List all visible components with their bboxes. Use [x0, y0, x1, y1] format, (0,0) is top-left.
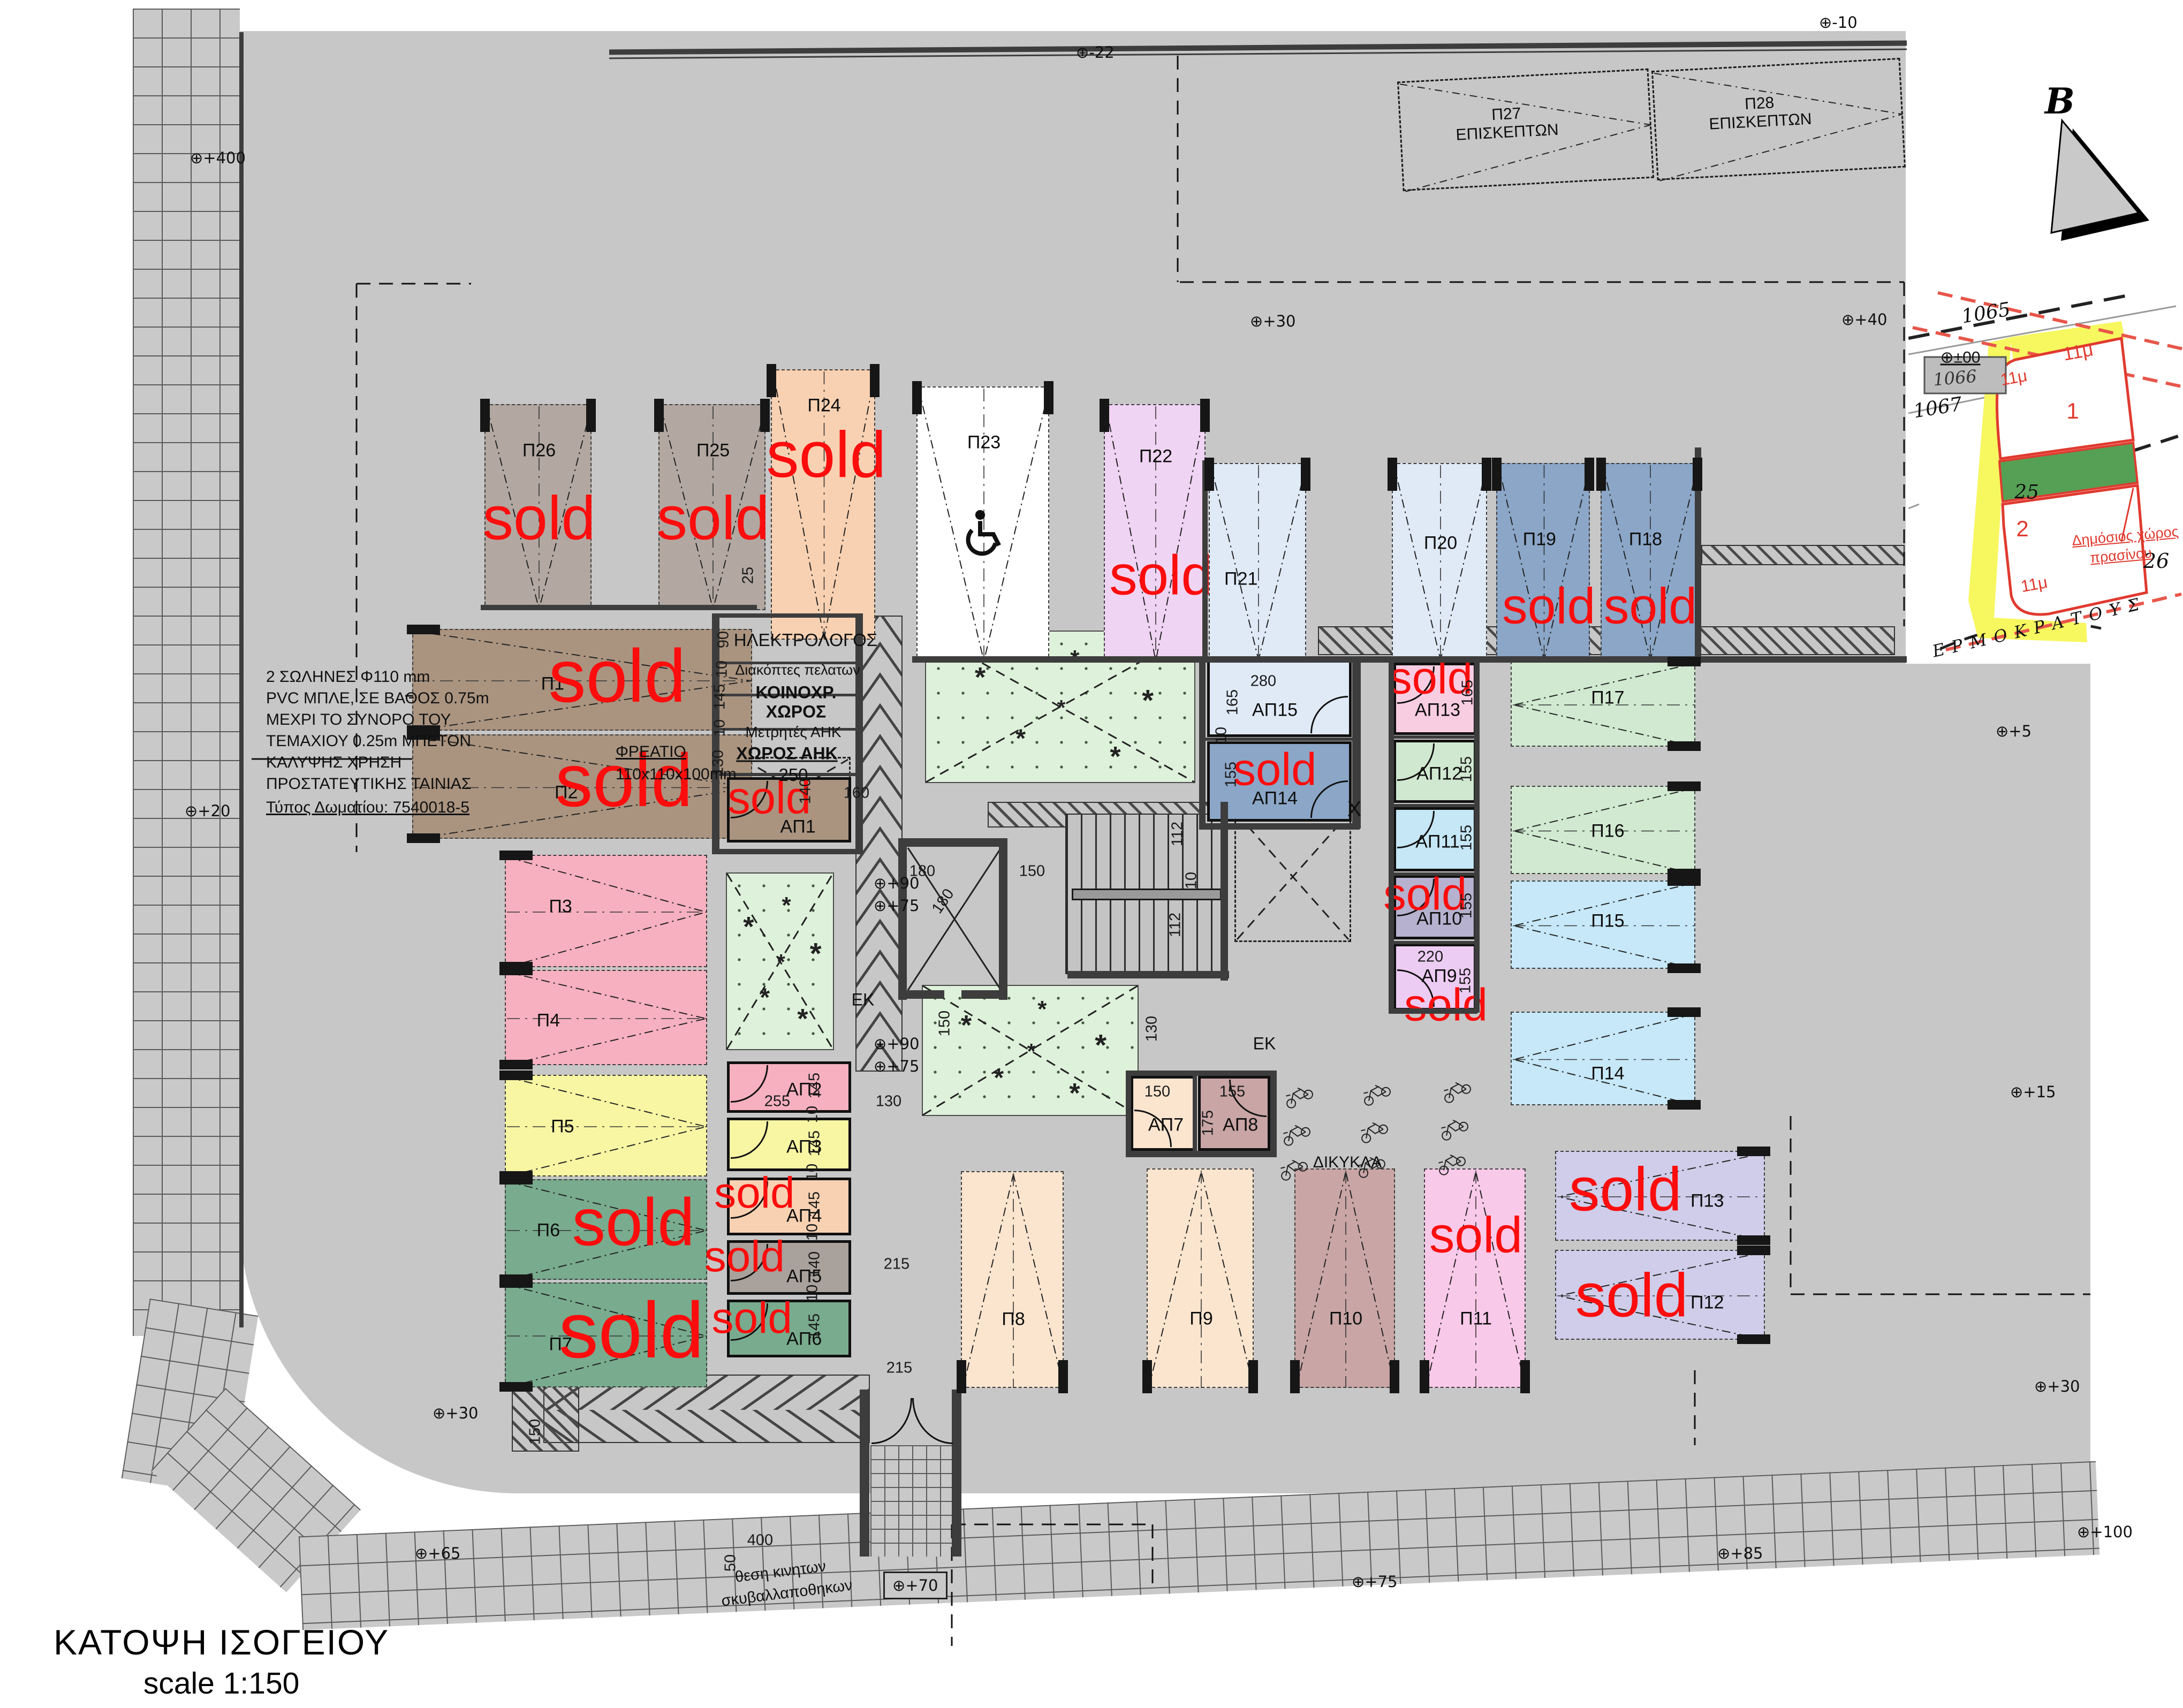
stall-label: Π22 [1139, 446, 1172, 467]
level-marker: ⊕+30 [2034, 1377, 2080, 1395]
wall-tick [1737, 1334, 1770, 1344]
parking-stall-Π4: Π4 [505, 970, 707, 1065]
stall-markings [1210, 464, 1307, 662]
annotation-text: X [1347, 798, 1362, 822]
stall-markings [506, 1076, 708, 1178]
stall-markings [1393, 464, 1488, 662]
stall-label: Π21 [1224, 568, 1257, 589]
stall-label: ΑΠ8 [1223, 1114, 1258, 1135]
sold-badge: sold [1233, 747, 1317, 793]
annotation-text: 110x110x100mm [616, 765, 737, 784]
parking-stall-Π19: Π19sold [1496, 463, 1590, 661]
annotation-text: 2 [2016, 516, 2028, 542]
wall-tick [1667, 657, 1701, 666]
store-room-ΑΠ1: ΑΠ1sold [727, 777, 851, 842]
wall-tick [499, 851, 533, 860]
stall-label: ΑΠ15 [1252, 700, 1298, 720]
parking-stall-Π12: Π12sold [1555, 1250, 1765, 1340]
level-marker: ⊕+20 [185, 802, 231, 820]
dimension-label: 280 [1250, 673, 1276, 690]
wall-tick [1248, 1360, 1258, 1393]
wall-tick [1737, 1246, 1770, 1255]
wall-tick [586, 399, 596, 432]
dimension-label: 130 [1143, 1016, 1161, 1042]
stair-handrail [1072, 889, 1222, 900]
dimension-label: 145 [806, 1073, 824, 1098]
level-marker: ⊕+70 [883, 1572, 948, 1599]
level-marker: ⊕+75 [874, 897, 920, 915]
wall-segment [1126, 1071, 1277, 1076]
staircase [1065, 814, 1226, 974]
wall-tick [1737, 1147, 1770, 1156]
parking-stall-Π6: Π6sold [505, 1179, 707, 1280]
annotation-text: EK [1253, 1034, 1276, 1054]
wall-segment [912, 656, 1217, 663]
annotation-text: ΦΡΕΑΤΙΟ [616, 743, 686, 761]
wall-tick [957, 1360, 966, 1393]
door-swing-icon [731, 1065, 768, 1103]
level-marker: ⊕+400 [190, 149, 246, 167]
wall-segment [481, 605, 757, 610]
sold-badge: sold [712, 1296, 792, 1340]
wall-tick [1585, 458, 1594, 491]
stall-markings [506, 856, 708, 968]
annotation-text: Διακόπτες πελατων [735, 662, 860, 679]
wall-tick [1667, 876, 1701, 886]
wall-tick [499, 1278, 533, 1288]
stall-label: Π19 [1523, 529, 1556, 550]
annotation-text: ΗΛΕΚΤΡΟΛΟΓΟΣ [734, 630, 877, 650]
wall-segment [1389, 658, 1394, 1013]
annotation-text: ΔΙΚΥΚΛΑ [1313, 1153, 1382, 1172]
wall-segment [239, 32, 244, 1327]
dimension-label: 25 [740, 567, 757, 584]
dimension-label: 155 [1223, 762, 1240, 787]
dimension-label: 155 [1458, 756, 1476, 782]
stall-label: Π17 [1591, 688, 1624, 709]
parking-stall-Π9: Π9 [1147, 1168, 1254, 1388]
north-arrow: B [2034, 80, 2157, 246]
sold-badge: sold [1109, 548, 1212, 604]
annotation-text: 1066 [1932, 366, 1977, 390]
dimension-label: 10 [804, 1164, 822, 1181]
level-marker: ⊕+65 [415, 1544, 461, 1562]
dimension-label: 90 [715, 631, 733, 648]
annotation-text: 2 ΣΩΛΗΝΕΣ Φ110 mm [266, 668, 430, 686]
level-marker: ⊕+15 [2010, 1083, 2056, 1101]
dimension-label: 145 [806, 1130, 824, 1156]
stall-label: Π15 [1591, 911, 1624, 932]
parking-stall-Π24: Π24sold [771, 369, 875, 640]
stall-label: Π23 [967, 432, 1000, 453]
sold-badge: sold [572, 1189, 694, 1256]
annotation-text: 250 [778, 765, 808, 785]
sold-badge: sold [549, 639, 686, 713]
wall-tick [1693, 458, 1702, 491]
stall-label: Π5 [551, 1117, 574, 1137]
sold-badge: sold [559, 1291, 704, 1370]
wall-tick [760, 399, 770, 432]
wall-tick [1044, 381, 1053, 414]
parking-stall-Π14: Π14 [1511, 1012, 1695, 1105]
wall-tick [1667, 1007, 1701, 1017]
stall-markings [1148, 1170, 1255, 1389]
dimension-label: 10 [804, 1106, 822, 1123]
stall-label: ΑΠ11 [1415, 832, 1460, 853]
wall-tick [499, 1060, 533, 1069]
sold-badge: sold [1429, 1210, 1522, 1261]
wall-tick [1520, 1360, 1530, 1393]
store-room-ΑΠ4: ΑΠ4sold [727, 1178, 851, 1235]
dimension-label: 145 [711, 684, 729, 710]
wall-tick [499, 1175, 533, 1185]
wall-tick [912, 381, 922, 414]
wall-segment [1389, 804, 1477, 807]
x-lines [922, 985, 1139, 1116]
wall-tick [1667, 1100, 1701, 1110]
parking-stall-Π16: Π16 [1511, 786, 1695, 874]
stall-markings [962, 1172, 1065, 1389]
dimension-label: 112 [1167, 913, 1185, 937]
dimension-label: 10 [1183, 872, 1201, 889]
wall-tick [499, 966, 533, 975]
level-marker: ⊕+75 [874, 1057, 920, 1075]
stall-markings [1105, 405, 1207, 663]
x-marked-area [726, 872, 834, 1050]
level-marker: ⊕-10 [1819, 13, 1858, 32]
dimension-label: 150 [1144, 1083, 1170, 1101]
annotation-text: ΧΩΡΟΣ ΑΗΚ [736, 744, 837, 764]
stall-label: Π18 [1629, 529, 1662, 550]
dimension-label: 155 [1219, 1083, 1245, 1101]
wall-tick [870, 364, 880, 397]
annotation-text: ΜΕΧΡΙ ΤΟ ΣΥΝΟΡΟ ΤΟΥ [266, 711, 451, 729]
dimension-label: 150 [936, 1011, 954, 1036]
dimension-label: 175 [1200, 1110, 1217, 1136]
wheelchair-icon [918, 388, 1050, 663]
parking-stall-Π22: Π22sold [1104, 404, 1206, 662]
annotation-text: ΧΩΡΟΣ [766, 702, 826, 722]
wall-segment [898, 838, 1007, 847]
wall-tick [1492, 458, 1502, 491]
level-marker: ⊕+100 [2077, 1523, 2133, 1541]
wall-tick [1667, 963, 1701, 973]
wall-tick [767, 364, 776, 397]
parking-stall-Π23: Π23 [916, 386, 1049, 662]
dimension-label: 215 [886, 1360, 912, 1377]
wall-tick [1200, 399, 1210, 432]
level-marker: ⊕+30 [1250, 312, 1296, 330]
level-marker: ⊕+75 [1352, 1573, 1398, 1591]
stall-markings [1425, 1170, 1527, 1389]
stall-label: Π24 [807, 395, 840, 416]
sold-badge: sold [483, 488, 596, 549]
dimension-label: 150 [527, 1419, 544, 1445]
parking-stall-Π13: Π13sold [1555, 1151, 1765, 1241]
sold-badge: sold [1502, 581, 1595, 632]
level-marker: ⊕+30 [433, 1404, 479, 1422]
dimension-label: 10 [804, 1285, 822, 1302]
parking-stall-Π7: Π7sold [505, 1282, 707, 1387]
annotation-text: PVC ΜΠΛΕ, ΣΕ ΒΑΘΟΣ 0.75m [266, 689, 489, 708]
annotation-text: ΚΑΛΥΨΗΣ ΧΡΗΣΗ [266, 754, 401, 772]
parking-stall-Π1: Π1sold [412, 629, 752, 731]
dimension-label: 165 [1224, 689, 1242, 715]
wall-tick [407, 833, 440, 843]
wall-segment [1199, 656, 1206, 829]
sold-badge: sold [704, 1235, 785, 1279]
x-lines [1236, 813, 1350, 940]
wall-tick [1667, 781, 1701, 791]
wall-tick [1100, 399, 1109, 432]
door-swing-icon [731, 1121, 768, 1159]
annotation-text: ΤΕΜΑΧΙΟΥ 0.25m ΜΠΕΤΟΝ [266, 732, 471, 750]
dimension-label: 10 [711, 719, 729, 737]
wall-tick [1058, 1360, 1068, 1393]
store-room-ΑΠ3: ΑΠ3 [727, 1118, 851, 1171]
stall-label: Π10 [1329, 1308, 1362, 1329]
store-room-ΑΠ5: ΑΠ5sold [727, 1240, 851, 1295]
wall-tick [654, 399, 664, 432]
parking-stall-Π17: Π17 [1511, 661, 1695, 747]
stall-markings [1512, 1013, 1696, 1106]
parking-stall-Π3: Π3 [505, 855, 707, 967]
dimension-label: 160 [844, 785, 869, 802]
wall-segment [1126, 1151, 1277, 1157]
dimension-label: 112 [1169, 822, 1187, 846]
dimension-label: 165 [1459, 680, 1477, 705]
parking-stall-Π20: Π20 [1392, 463, 1487, 661]
dimension-label: 155 [1458, 825, 1476, 851]
north-arrow-glyph [2034, 80, 2157, 246]
wall-segment [1204, 656, 1907, 663]
dimension-label: 155 [1457, 968, 1475, 993]
wall-segment [961, 990, 1007, 999]
wall-segment [1126, 1071, 1131, 1157]
wall-segment [952, 1390, 961, 1557]
level-marker: ⊕+90 [874, 874, 920, 892]
stall-label: Π4 [537, 1010, 560, 1031]
dimension-label: 400 [747, 1532, 773, 1550]
wall-tick [407, 625, 440, 634]
drawing-scale: scale 1:150 [54, 1666, 389, 1701]
dimension-label: 155 [1458, 893, 1476, 918]
wall-tick [1596, 458, 1606, 491]
wall-segment [1389, 735, 1477, 739]
parking-stall-Π11: Π11sold [1424, 1168, 1526, 1388]
parking-stall-Π15: Π15 [1511, 880, 1695, 969]
level-marker: ⊕+90 [874, 1035, 920, 1053]
stall-label: Π13 [1691, 1191, 1724, 1212]
annotation-text: ΠΡΟΣΤΑΤΕΥΤΙΚΗΣ ΤΑΙΝΙΑΣ [266, 775, 471, 793]
parking-stall-Π21: Π21 [1209, 463, 1306, 661]
dimension-label: 215 [884, 1256, 909, 1273]
stall-label: Π14 [1591, 1063, 1624, 1084]
stall-label: Π25 [696, 440, 730, 461]
annotation-text: Μετρητές ΑΗΚ [745, 724, 841, 741]
level-marker: ⊕+40 [1841, 310, 1888, 329]
wall-tick [1142, 1360, 1152, 1393]
drawing-title: ΚΑΤΟΨΗ ΙΣΟΓΕΙΟΥ [54, 1622, 389, 1663]
wall-segment [1389, 941, 1477, 944]
sold-badge: sold [1383, 872, 1467, 917]
stall-label: Π16 [1591, 821, 1624, 841]
annotation-text: EK [852, 990, 875, 1010]
wall-tick [499, 1382, 533, 1392]
stall-label: ΑΠ12 [1416, 764, 1462, 785]
stall-label: Π26 [522, 440, 556, 461]
stall-markings [1295, 1170, 1396, 1389]
x-marked-area [1234, 811, 1351, 942]
wall-tick [1388, 458, 1397, 491]
annotation-text: Τύπος Δωματίου: 7540018-5 [266, 799, 469, 817]
stall-label: Π3 [549, 896, 572, 917]
wall-segment [1193, 1075, 1197, 1152]
stall-label: Π11 [1460, 1308, 1492, 1329]
sold-badge: sold [1569, 1159, 1682, 1220]
stall-label: ΑΠ7 [1148, 1114, 1184, 1135]
parking-stall-Π18: Π18sold [1601, 463, 1698, 661]
dimension-label: 255 [764, 1093, 790, 1111]
annotation-text: ⊕±00 [1941, 348, 1981, 367]
wall-segment [1389, 872, 1477, 876]
door-swing-icon [1310, 696, 1348, 733]
wall-segment [1389, 1008, 1477, 1014]
wall-segment [1199, 823, 1360, 830]
stall-label: Π9 [1189, 1308, 1212, 1329]
stall-label: Π20 [1424, 533, 1457, 554]
wall-segment [1067, 971, 1229, 978]
x-lines [726, 872, 834, 1050]
wall-tick [1390, 1360, 1399, 1393]
stall-label: Π6 [537, 1220, 560, 1241]
wall-tick [1301, 458, 1310, 491]
stall-label: Π8 [1002, 1309, 1025, 1330]
sold-badge: sold [714, 1171, 794, 1215]
wall-segment [1270, 1071, 1277, 1157]
wall-tick [1420, 1360, 1429, 1393]
annotation-text: ΚΟΙΝΟΧΡ. [756, 683, 837, 703]
dimension-label: 145 [806, 1314, 824, 1339]
dimension-label: 10 [714, 661, 731, 678]
level-marker: ⊕+5 [1996, 722, 2032, 740]
dimension-label: 220 [1418, 948, 1443, 966]
parking-stall-Π26: Π26sold [484, 404, 592, 610]
dimension-label: 130 [876, 1093, 901, 1111]
sold-badge: sold [1604, 581, 1697, 632]
sold-badge: sold [657, 488, 770, 549]
wall-tick [1290, 1360, 1300, 1393]
floor-plan-canvas: ******************Π26soldΠ25soldΠ24soldΠ… [0, 0, 2183, 1708]
wall-tick [1737, 1235, 1770, 1245]
wall-segment [712, 613, 863, 618]
annotation-text: 25 [2014, 482, 2039, 504]
wall-tick [1667, 741, 1701, 751]
wall-segment [999, 838, 1007, 1000]
dimension-label: 10 [804, 1224, 822, 1241]
stall-label: Π12 [1691, 1293, 1724, 1314]
store-room-ΑΠ6: ΑΠ6sold [727, 1300, 851, 1357]
sold-badge: sold [1575, 1265, 1688, 1327]
parking-stall-Π10: Π10 [1294, 1168, 1395, 1388]
wall-segment [860, 1390, 869, 1557]
parking-stall-Π8: Π8 [961, 1171, 1064, 1388]
dimension-label: 145 [806, 1191, 824, 1217]
annotation-text: 1 [2066, 398, 2079, 424]
wall-tick [499, 1071, 533, 1080]
wall-tick [1204, 458, 1214, 491]
x-marked-area [922, 985, 1139, 1116]
wall-segment [712, 849, 863, 854]
wall-tick [480, 399, 490, 432]
parking-stall-Π5: Π5 [505, 1075, 707, 1176]
title-block: ΚΑΤΟΨΗ ΙΣΟΓΕΙΟΥ scale 1:150 [54, 1622, 389, 1701]
dimension-label: 150 [1019, 863, 1045, 880]
dimension-label: 10 [1213, 727, 1231, 744]
level-marker: ⊕+85 [1717, 1544, 1763, 1562]
dimension-label: 140 [806, 1251, 824, 1277]
wall-segment [898, 838, 907, 1000]
level-marker: ⊕-22 [1076, 43, 1115, 62]
wall-segment [898, 990, 944, 999]
sold-badge: sold [766, 422, 886, 487]
wall-tick [1482, 458, 1491, 491]
